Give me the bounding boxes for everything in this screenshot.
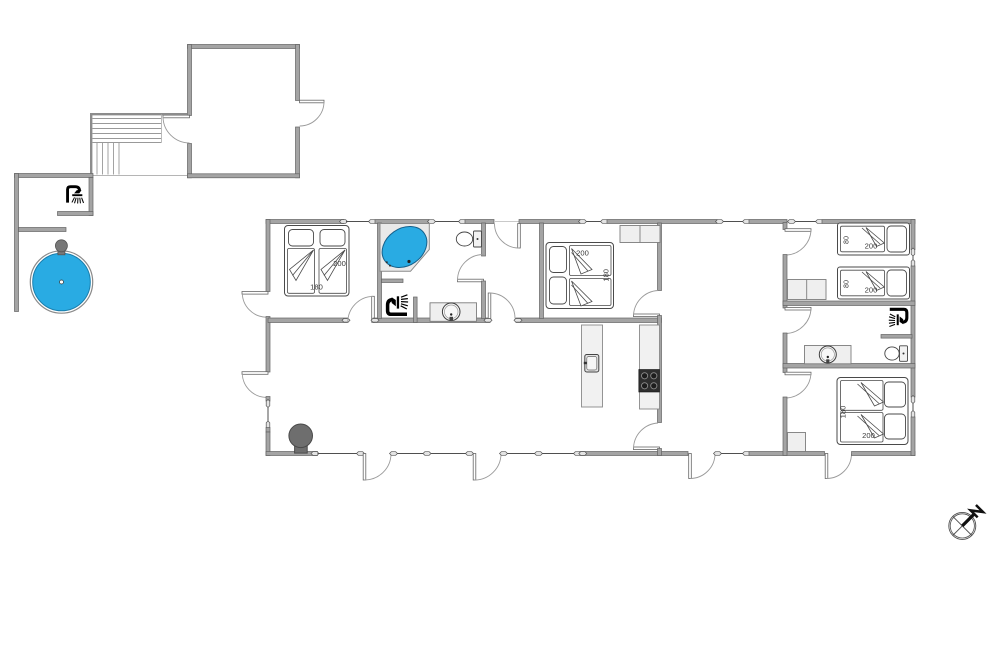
svg-text:180: 180	[601, 269, 610, 282]
svg-text:200: 200	[333, 259, 346, 268]
svg-text:200: 200	[865, 286, 878, 295]
svg-text:200: 200	[576, 249, 589, 258]
svg-text:80: 80	[842, 280, 851, 288]
svg-text:180: 180	[310, 283, 323, 292]
svg-text:80: 80	[842, 236, 851, 244]
svg-text:200: 200	[865, 242, 878, 251]
svg-text:180: 180	[839, 406, 848, 419]
svg-text:200: 200	[862, 431, 875, 440]
